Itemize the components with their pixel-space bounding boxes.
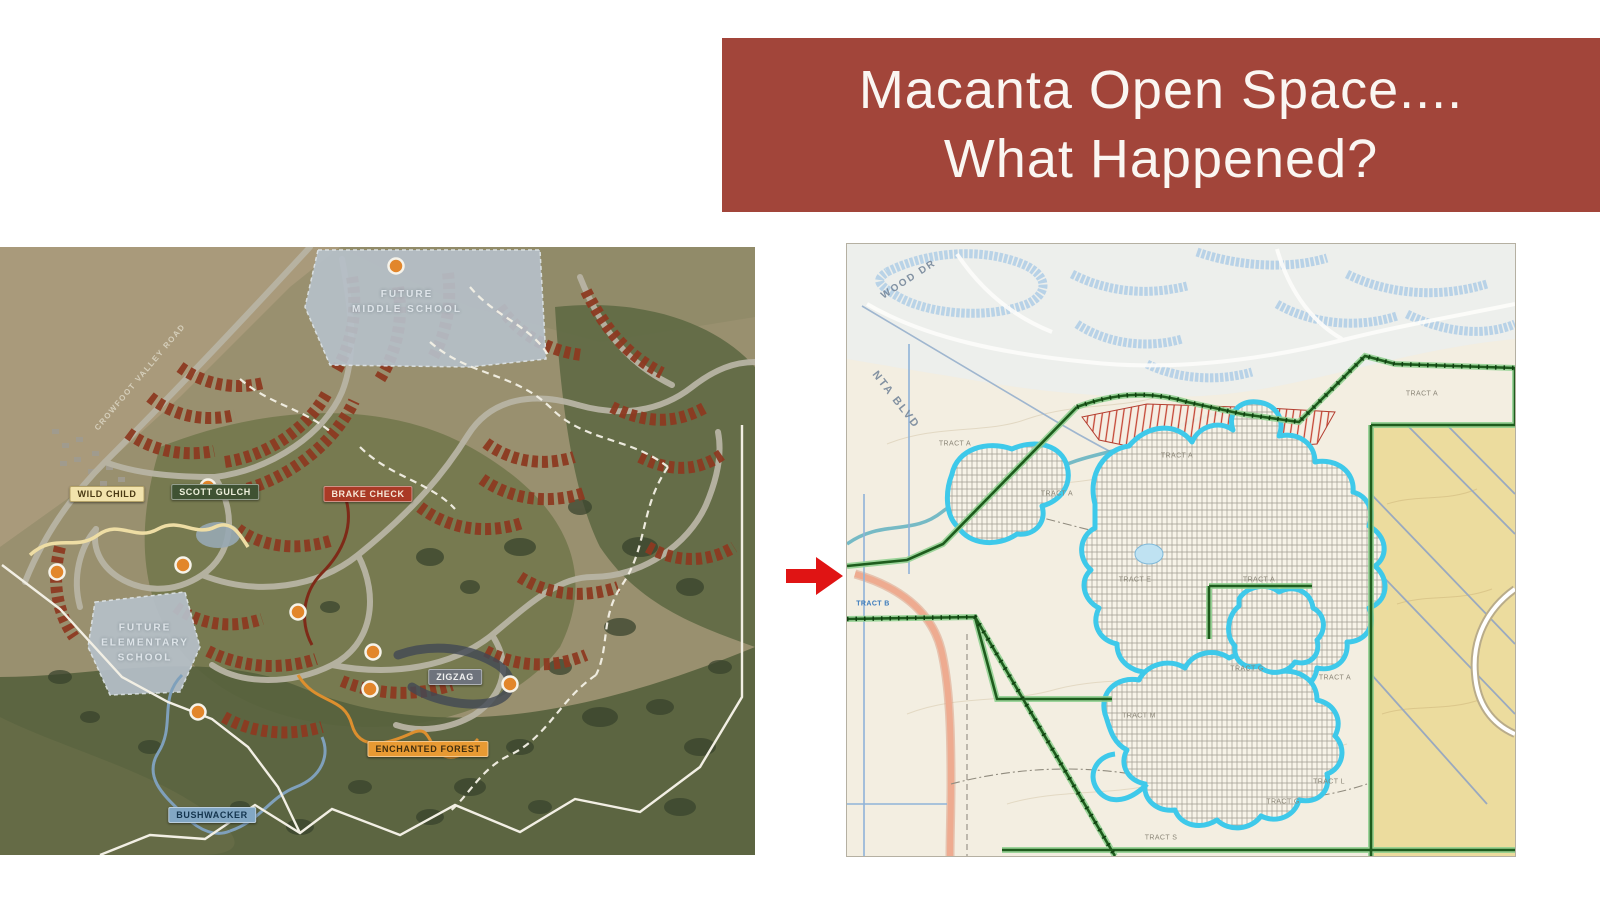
tract-label: TRACT A — [1406, 391, 1438, 398]
tract-label: TRACT A — [1319, 675, 1351, 682]
trail-label-zigzag: ZIGZAG — [428, 669, 482, 685]
future-middle-school-label: FUTURE MIDDLE SCHOOL — [352, 287, 462, 317]
trail-label-wild-child: WILD CHILD — [70, 486, 145, 502]
transition-arrow-icon — [786, 556, 844, 596]
zoning-plat-map: WOOD DR NTA BLVD TRACT B TRACT A TRACT A… — [846, 243, 1516, 857]
parcel-label-tract-b: TRACT B — [856, 601, 890, 608]
trail-label-scott-gulch: SCOTT GULCH — [171, 484, 259, 500]
slide: Macanta Open Space.... What Happened? — [0, 0, 1600, 900]
tract-label: TRACT L — [1313, 779, 1345, 786]
tract-label: TRACT A — [939, 441, 971, 448]
tract-label: TRACT A — [1161, 453, 1193, 460]
tract-label: TRACT A — [1243, 577, 1275, 584]
tract-label: TRACT S — [1145, 835, 1178, 842]
tract-label: TRACT E — [1119, 577, 1152, 584]
title-banner: Macanta Open Space.... What Happened? — [722, 38, 1600, 212]
plat-map-art — [847, 244, 1515, 856]
tract-label: TRACT G — [1266, 799, 1299, 806]
trail-label-brake-check: BRAKE CHECK — [323, 486, 412, 502]
trail-label-enchanted-forest: ENCHANTED FOREST — [367, 741, 488, 757]
tract-label: TRACT M — [1122, 713, 1156, 720]
title-line-1: Macanta Open Space.... — [859, 56, 1463, 125]
trail-label-bushwacker: BUSHWACKER — [168, 807, 256, 823]
tract-label: TRACT G — [1230, 666, 1263, 673]
future-elementary-school-label: FUTURE ELEMENTARY SCHOOL — [101, 621, 189, 666]
tract-label: TRACT A — [1041, 491, 1073, 498]
aerial-master-plan-map: CROWFOOT VALLEY ROAD FUTURE MIDDLE SCHOO… — [0, 247, 755, 855]
aerial-map-art — [0, 247, 755, 855]
title-line-2: What Happened? — [944, 125, 1378, 194]
